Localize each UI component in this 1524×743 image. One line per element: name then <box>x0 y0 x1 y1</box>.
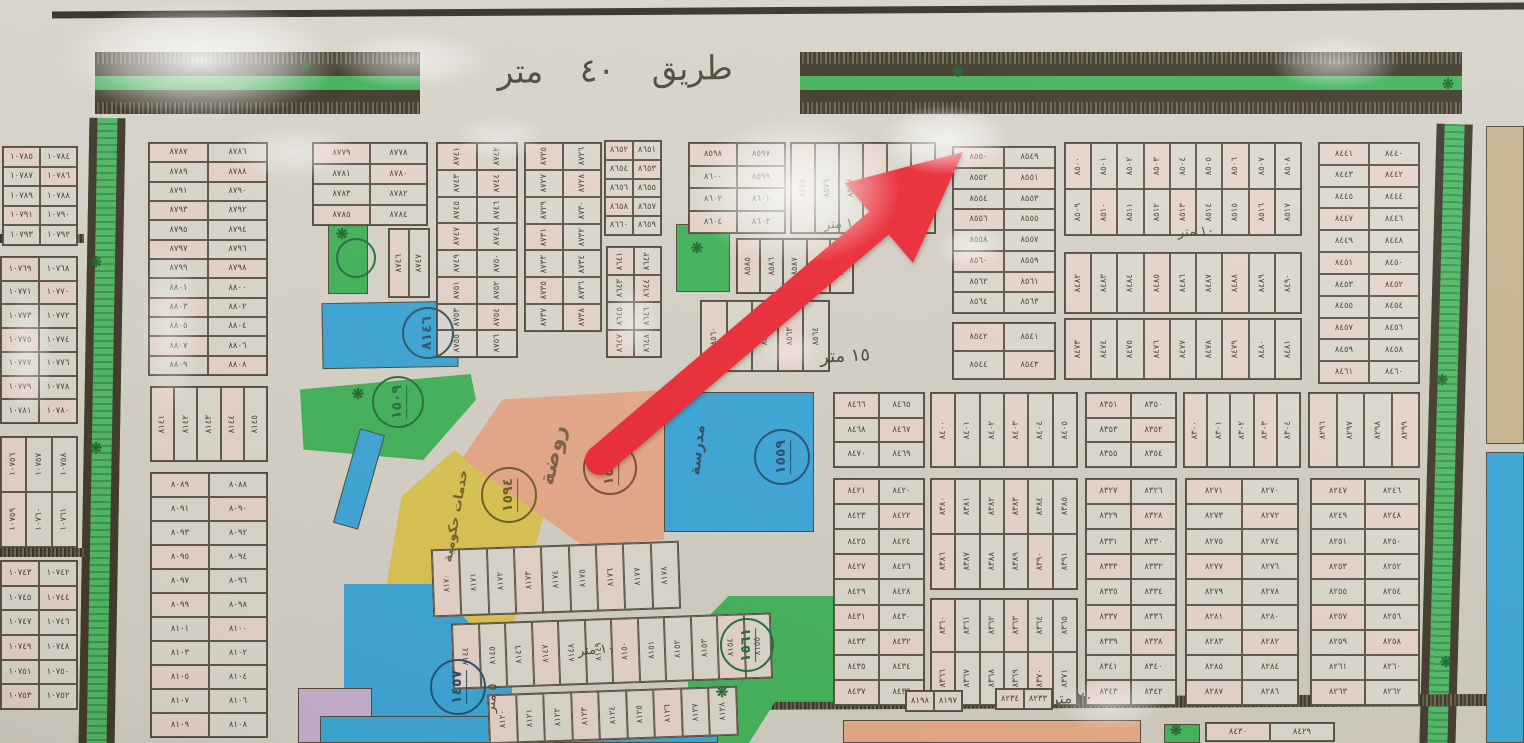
parcel-block: ٨٤٤١٨٤٤٠٨٤٤٣٨٤٤٢٨٤٤٥٨٤٤٤٨٤٤٧٨٤٤٦٨٤٤٩٨٤٤٨… <box>1318 142 1420 384</box>
tree-sparkle-icon: ❋ <box>90 253 103 271</box>
parcel-cell: ٨٨٠١ <box>149 278 208 297</box>
parcel-cell: ٨٧٤٣ <box>437 170 477 197</box>
parcel-cell: ٨٥٤٢ <box>953 323 1004 351</box>
parcel-cell: ٨٢٧٨ <box>1242 579 1298 604</box>
parcel-cell: ٨٥٨٩ <box>830 239 853 293</box>
parcel-cell: ٨٣٦٥ <box>1053 599 1077 652</box>
parcel-cell: ٨٥٥٧ <box>1004 230 1055 251</box>
parcel-block: ٨١٩٨٨١٩٧ <box>905 690 963 712</box>
parcel-cell: ٨٢٨٣ <box>1186 630 1242 655</box>
parcel-cell: ٨٤٨٥ <box>1144 253 1170 313</box>
parcel-cell: ٨٤٢١ <box>834 479 879 504</box>
parcel-cell: ٨٥١٥ <box>1222 189 1248 235</box>
parcel-cell: ٨٢٣٤ <box>996 689 1024 709</box>
parcel-cell: ٨٢٩٨ <box>1364 393 1392 467</box>
parcel-cell: ٨٢٥٧ <box>1311 605 1365 630</box>
parcel-cell: ٨٣٣٧ <box>1086 605 1131 630</box>
parcel-cell: ٨١٠٦ <box>209 689 267 713</box>
parcel-cell: ٨٥٧٩ <box>887 143 911 233</box>
tree-sparkle-icon: ❋ <box>352 385 365 403</box>
parcel-cell: ٨٧٤٤ <box>477 170 517 197</box>
parcel-cell: ٨٤٥٣ <box>1319 274 1369 296</box>
parcel-cell: ٨٣٣٠ <box>1131 529 1176 554</box>
parcel-cell: ٨٧٩٠ <box>208 182 267 201</box>
parcel-block: ٨٣٨٠٨٣٨١٨٣٨٢٨٣٨٣٨٣٨٤٨٣٨٥٨٣٨٦٨٣٨٧٨٣٨٨٨٣٨٩… <box>930 478 1078 590</box>
parcel-block: ٨٤٠٠٨٤٠١٨٤٠٢٨٤٠٣٨٤٠٤٨٤٠٥ <box>930 392 1078 468</box>
parcel-cell: ٨٧٩٩ <box>149 259 208 278</box>
parcel-cell: ٨٣٠١ <box>1207 393 1230 467</box>
zone-garden-small-top <box>676 224 730 292</box>
parcel-cell: ١٠٧٧٩ <box>1 376 39 400</box>
parcel-cell: ٨٢٧٧ <box>1186 554 1242 579</box>
parcel-cell: ٨٥٥٨ <box>953 230 1004 251</box>
tree-sparkle-icon: ❋ <box>336 225 349 243</box>
parcel-cell: ٨٤٣٠ <box>879 605 924 630</box>
parcel-cell: ١٠٧٨٥ <box>3 147 40 167</box>
parcel-cell: ٨٢٧٩ <box>1186 579 1242 604</box>
parcel-block: ٨٥٥٠٨٥٤٩٨٥٥٢٨٥٥١٨٥٥٤٨٥٥٣٨٥٥٦٨٥٥٥٨٥٥٨٨٥٥٧… <box>952 146 1056 314</box>
parcel-block: ٨٣٠٠٨٣٠١٨٣٠٢٨٣٠٣٨٣٠٤ <box>1183 392 1301 468</box>
parcel-cell: ٨٧٢٨ <box>563 170 601 197</box>
parcel-cell: ٨٢٧٦ <box>1242 554 1298 579</box>
parcel-cell: ٨٥٠٥ <box>1196 143 1222 189</box>
parcel-cell: ٨١٧٢ <box>487 547 517 614</box>
parcel-cell: ٨٢٥٠ <box>1365 529 1419 554</box>
parcel-cell: ٨١٠٠ <box>209 617 267 641</box>
parcel-cell: ١٠٧٤٤ <box>39 586 77 611</box>
parcel-cell: ١٠٧٨٦ <box>40 167 77 187</box>
parcel-cell: ٨٥٤٣ <box>1004 351 1055 379</box>
parcel-cell: ٨٥٦٢ <box>953 272 1004 293</box>
parcel-cell: ٨٣٥١ <box>1086 393 1131 418</box>
parcel-cell: ٨٠٩٦ <box>209 569 267 593</box>
parcel-cell: ٨٣٥٣ <box>1086 418 1131 443</box>
street-label: ١٥ متر <box>819 344 870 368</box>
parcel-cell: ٨٤٩٠ <box>1275 253 1301 313</box>
parcel-cell: ٨٥٥٣ <box>1004 189 1055 210</box>
parcel-block: ٨٣٥١٨٣٥٠٨٣٥٣٨٣٥٢٨٣٥٥٨٣٥٤ <box>1085 392 1177 468</box>
parcel-block: ٨٦٤١٨٦٤٢٨٦٤٣٨٦٤٤٨٦٤٥٨٦٤٦٨٦٤٧٨٦٤٨ <box>606 246 662 358</box>
parcel-cell: ٨٤٧٧ <box>1170 319 1196 379</box>
parcel-cell: ٨٦٥٦ <box>605 179 633 198</box>
parcel-cell: ٨٥٠٣ <box>1144 143 1170 189</box>
parcel-cell: ٨٧٣٣ <box>525 250 563 277</box>
parcel-cell: ٨٧٥٦ <box>477 330 517 357</box>
parcel-cell: ٨٠٩١ <box>151 497 209 521</box>
parcel-cell: ٨٧٥٢ <box>477 277 517 304</box>
parcel-cell: ٨٣٣٦ <box>1131 605 1176 630</box>
parcel-cell: ٨٧٩٦ <box>208 240 267 259</box>
parcel-cell: ١٠٧٥٠ <box>39 660 77 685</box>
parcel-block: ٨٧٢٥٨٧٢٦٨٧٢٧٨٧٢٨٨٧٢٩٨٧٣٠٨٧٣١٨٧٣٢٨٧٣٣٨٧٣٤… <box>524 142 602 332</box>
parcel-cell: ٨٤٥٥ <box>1319 296 1369 318</box>
parcel-cell: ٨٧٣٥ <box>525 277 563 304</box>
parcel-cell: ٨٧٣٤ <box>563 250 601 277</box>
parcel-cell: ٨٢٦٢ <box>1365 680 1419 705</box>
parcel-cell: ٨٦٥٧ <box>633 197 661 216</box>
parcel-cell: ٨١٠٥ <box>151 665 209 689</box>
parcel-cell: ٨٤٤٣ <box>1319 165 1369 187</box>
parcel-cell: ٨٢٩٩ <box>1392 393 1420 467</box>
parcel-cell: ٨٦٥٩ <box>633 216 661 235</box>
parcel-cell: ٨٠٩٧ <box>151 569 209 593</box>
parcel-cell: ١٠٧٤٨ <box>39 635 77 660</box>
parcel-block: ٨٢٣٤٨٢٣٣ <box>995 688 1053 710</box>
parcel-cell: ٨٠٨٩ <box>151 473 209 497</box>
parcel-cell: ٨٧٤٥ <box>437 197 477 224</box>
parcel-cell: ٨٧٣٢ <box>563 224 601 251</box>
parcel-cell: ١٠٧٨٤ <box>40 147 77 167</box>
parcel-cell: ٨٤٤٧ <box>1319 208 1369 230</box>
parcel-cell: ٨٥٠٤ <box>1170 143 1196 189</box>
parcel-block: ٨٤٦٦٨٤٦٥٨٤٦٨٨٤٦٧٨٤٧٠٨٤٦٩ <box>833 392 925 468</box>
parcel-cell: ٨٣٠٢ <box>1230 393 1253 467</box>
left-road-strip <box>79 118 126 743</box>
parcel-cell: ٨٤٤٠ <box>1369 143 1419 165</box>
parcel-cell: ٨٥٦٠ <box>701 301 727 371</box>
parcel-cell: ٨١٠٨ <box>209 713 267 737</box>
tree-sparkle-icon: ❋ <box>952 63 965 81</box>
parcel-cell: ١٠٧٨٧ <box>3 167 40 187</box>
parcel-cell: ٨١٠٧ <box>151 689 209 713</box>
parcel-cell: ٨٤٦١ <box>1319 361 1369 383</box>
parcel-cell: ٨٣٢٨ <box>1131 504 1176 529</box>
parcel-cell: ٨٧٩٤ <box>208 220 267 239</box>
parcel-cell: ٨٤٦٩ <box>879 442 924 467</box>
parcel-cell: ٨١٧٥ <box>568 545 598 612</box>
parcel-cell: ٨٨٠٤ <box>208 317 267 336</box>
parcel-cell: ٨٧٨٠ <box>370 164 427 185</box>
parcel-cell: ٨٦٤٦ <box>634 302 661 330</box>
parcel-cell: ٨١٠٣ <box>151 641 209 665</box>
parcel-block: ٨١٢٠٨١٢١٨١٢٢٨١٢٣٨١٢٤٨١٢٥٨١٢٦٨١٢٧٨١٢٨ <box>487 686 739 743</box>
parcel-cell: ٨٨٠٦ <box>208 336 267 355</box>
parcel-cell: ٨٧٨٧ <box>149 143 208 162</box>
parcel-cell: ٨٤٨٩ <box>1249 253 1275 313</box>
tree-sparkle-icon: ❋ <box>1442 75 1455 93</box>
parcel-block: ١٠٧٦٩١٠٧٦٨١٠٧٧١١٠٧٧٠١٠٧٧٣١٠٧٧٢١٠٧٧٥١٠٧٧٤… <box>0 256 78 424</box>
parcel-cell: ٨٣٦٢ <box>980 599 1004 652</box>
parcel-cell: ٨٣٤٠ <box>1131 655 1176 680</box>
parcel-cell: ٨٥٥٦ <box>953 209 1004 230</box>
parcel-cell: ١٠٧٧٢ <box>39 304 77 328</box>
road-40m-green-strip-left <box>95 52 420 114</box>
parcel-cell: ٨٧٤١ <box>437 143 477 170</box>
parcel-cell: ٨٣٢٦ <box>1131 479 1176 504</box>
parcel-cell: ٨٤٢٤ <box>879 529 924 554</box>
parcel-cell: ٨٤٦٦ <box>834 393 879 418</box>
parcel-cell: ٨٣٤٢ <box>1131 680 1176 705</box>
parcel-cell: ١٠٧٧٠ <box>39 281 77 305</box>
parcel-cell: ٨٢٥٨ <box>1365 630 1419 655</box>
parcel-cell: ٨٢٥٣ <box>1311 554 1365 579</box>
parcel-cell: ٨٣٨٩ <box>1004 534 1028 589</box>
parcel-cell: ٨٥٤١ <box>1004 323 1055 351</box>
parcel-cell: ٨٤٢٨ <box>879 579 924 604</box>
parcel-cell: ٨٤٤٤ <box>1369 187 1419 209</box>
block-number-circle: ١٥٥٩ <box>754 429 810 485</box>
parcel-cell: ٨٥١٠ <box>1091 189 1117 235</box>
parcel-block: ٨٤٣٠٨٤٢٩ <box>1205 722 1335 742</box>
road-40m-green-strip-right <box>800 52 1462 114</box>
tree-sparkle-icon: ❋ <box>90 439 103 457</box>
parcel-cell: ٨٤٨٤ <box>1117 253 1143 313</box>
parcel-cell: ٨٤٠٥ <box>1053 393 1077 467</box>
parcel-cell: ٨٦٥٨ <box>605 197 633 216</box>
parcel-cell: ٨٣٣٤ <box>1131 579 1176 604</box>
parcel-cell: ٨٦٤٥ <box>607 302 634 330</box>
parcel-cell: ٨٤٤١ <box>1319 143 1369 165</box>
parcel-cell: ٨٤٧٣ <box>1065 319 1091 379</box>
parcel-cell: ٨٢٩٦ <box>1309 393 1337 467</box>
parcel-cell: ٨٤٤٥ <box>1319 187 1369 209</box>
parcel-cell: ٨١٢١ <box>516 693 545 742</box>
parcel-cell: ٨١٢٦ <box>653 689 682 738</box>
parcel-cell: ٨٤٢٩ <box>1270 723 1334 741</box>
parcel-cell: ٨١٢٥ <box>626 690 655 739</box>
parcel-cell: ٨٣٨٥ <box>1053 479 1077 534</box>
parcel-cell: ٨٣٣٨ <box>1131 630 1176 655</box>
parcel-cell: ١٠٧٥٣ <box>1 684 39 709</box>
parcel-cell: ٨٦٠٣ <box>737 211 785 234</box>
parcel-cell: ٨٧٣١ <box>525 224 563 251</box>
parcel-cell: ٨٧٩٨ <box>208 259 267 278</box>
parcel-cell: ٨٤٥٦ <box>1369 318 1419 340</box>
zone-tan-right-edge <box>1486 126 1524 444</box>
parcel-cell: ٨٣٨٤ <box>1028 479 1052 534</box>
parcel-cell: ٨٥٨٥ <box>737 239 760 293</box>
parcel-cell: ٨٢٤٧ <box>1311 479 1365 504</box>
parcel-cell: ٨٥٩٨ <box>689 143 737 166</box>
parcel-block: ٨٧٤٦٨٧٤٧ <box>388 228 430 298</box>
parcel-cell: ٨٦٤١ <box>607 247 634 275</box>
parcel-cell: ٨٧٨٢ <box>370 184 427 205</box>
parcel-cell: ٨٦٤٣ <box>607 275 634 303</box>
parcel-cell: ١٠٧٦٩ <box>1 257 39 281</box>
parcel-cell: ٨٨٠٢ <box>208 298 267 317</box>
parcel-cell: ٨٣٣٣ <box>1086 554 1131 579</box>
block-number-circle: ١٥٥٤ <box>583 441 637 495</box>
parcel-cell: ٨٧٢٧ <box>525 170 563 197</box>
parcel-cell: ٨٣٨٧ <box>955 534 979 589</box>
parcel-cell: ٨٥٠٦ <box>1222 143 1248 189</box>
parcel-cell: ٨٥٠١ <box>1091 143 1117 189</box>
parcel-cell: ٨٨٠٥ <box>149 317 208 336</box>
tree-sparkle-icon: ❋ <box>1440 653 1453 671</box>
parcel-cell: ٨٥٥٤ <box>953 189 1004 210</box>
parcel-cell: ٨١٧٦ <box>596 544 626 611</box>
parcel-cell: ٨٤٥٧ <box>1319 318 1369 340</box>
parcel-cell: ٨١٥٢ <box>664 616 693 681</box>
parcel-cell: ٨١٤٧ <box>531 621 560 686</box>
parcel-cell: ٨٧٨٨ <box>208 162 267 181</box>
parcel-cell: ٨١٧٧ <box>623 543 653 610</box>
parcel-cell: ٨٨٠٧ <box>149 336 208 355</box>
parcel-cell: ٨٧٢٥ <box>525 143 563 170</box>
parcel-cell: ٨٢٥١ <box>1311 529 1365 554</box>
parcel-cell: ٨٥٠٩ <box>1065 189 1091 235</box>
parcel-cell: ٨٥٥٩ <box>1004 251 1055 272</box>
parcel-cell: ٨٥٤٩ <box>1004 147 1055 168</box>
parcel-cell: ٨٧٩٣ <box>149 201 208 220</box>
parcel-cell: ٨٢٧١ <box>1186 479 1242 504</box>
parcel-cell: ٨٦٥٥ <box>633 179 661 198</box>
parcel-cell: ٨٤٢٧ <box>834 554 879 579</box>
parcel-cell: ٨٦٦٠ <box>605 216 633 235</box>
zone-blue-right-edge <box>1486 452 1524 743</box>
parcel-cell: ٨٢٥٩ <box>1311 630 1365 655</box>
parcel-cell: ٨١٤٢ <box>174 387 197 461</box>
parcel-cell: ٨٢٨٧ <box>1186 680 1242 705</box>
parcel-cell: ٨١٥٣ <box>690 615 719 680</box>
parcel-cell: ٨١٢٧ <box>681 688 710 737</box>
parcel-cell: ٨٤٣٥ <box>834 655 879 680</box>
tree-sparkle-icon: ❋ <box>1170 721 1183 739</box>
block-number-circle: ١٤٥٧ <box>430 659 486 715</box>
parcel-cell: ١٠٧٦١ <box>52 492 77 547</box>
parcel-cell: ١٠٧٥١ <box>1 660 39 685</box>
parcel-cell: ٨٤٨٧ <box>1196 253 1222 313</box>
parcel-cell: ٨١٠٤ <box>209 665 267 689</box>
parcel-cell: ٨٠٩٢ <box>209 521 267 545</box>
parcel-cell: ٨٥٨٦ <box>760 239 783 293</box>
parcel-cell: ٨٢٦٣ <box>1311 680 1365 705</box>
parcel-cell: ٨٢٨١ <box>1186 605 1242 630</box>
parcel-cell: ٨٧٥١ <box>437 277 477 304</box>
parcel-cell: ٨٧٤٦ <box>477 197 517 224</box>
parcel-cell: ٨٤٦٠ <box>1369 361 1419 383</box>
parcel-cell: ٨١٥٠ <box>611 618 640 683</box>
parcel-block: ٨٥٤٢٨٥٤١٨٥٤٤٨٥٤٣ <box>952 322 1056 380</box>
parcel-block: ٨٥٦٠٨٥٦١٨٥٦٢٨٥٦٣٨٥٦٤ <box>700 300 830 372</box>
parcel-cell: ٨٢٧٤ <box>1242 529 1298 554</box>
parcel-cell: ١٠٧٧٥ <box>1 328 39 352</box>
parcel-block: ١٠٧٤٣١٠٧٤٢١٠٧٤٥١٠٧٤٤١٠٧٤٧١٠٧٤٦١٠٧٤٩١٠٧٤٨… <box>0 560 78 710</box>
parcel-block: ٨٤٨٢٨٤٨٣٨٤٨٤٨٤٨٥٨٤٨٦٨٤٨٧٨٤٨٨٨٤٨٩٨٤٩٠ <box>1064 252 1302 314</box>
parcel-cell: ٨٧٣٠ <box>563 197 601 224</box>
parcel-cell: ٨٦٤٢ <box>634 247 661 275</box>
parcel-cell: ٨٧٤٦ <box>389 229 409 297</box>
parcel-cell: ٨٤٤٢ <box>1369 165 1419 187</box>
parcel-cell: ٨٥٨٠ <box>911 143 935 233</box>
parcel-cell: ٨٤٢٦ <box>879 554 924 579</box>
parcel-cell: ٨٧٩٥ <box>149 220 208 239</box>
parcel-cell: ٨٢٨٠ <box>1242 605 1298 630</box>
parcel-cell: ٨٢٧٢ <box>1242 504 1298 529</box>
parcel-cell: ١٠٧٥٨ <box>52 437 77 492</box>
parcel-cell: ٨٥٦٣ <box>1004 292 1055 313</box>
parcel-cell: ٨١٤٥ <box>244 387 267 461</box>
parcel-cell: ٨٤٦٥ <box>879 393 924 418</box>
parcel-cell: ٨٤٦٨ <box>834 418 879 443</box>
parcel-cell: ١٠٧٨٨ <box>40 186 77 206</box>
parcel-cell: ٨٧٩٧ <box>149 240 208 259</box>
right-road-strip <box>1419 124 1472 743</box>
street-label: ١٠ متر <box>577 641 614 659</box>
parcel-cell: ١٠٧٨٩ <box>3 186 40 206</box>
parcel-cell: ٨٤٨٦ <box>1170 253 1196 313</box>
parcel-block: ٨٧٧٩٨٧٧٨٨٧٨١٨٧٨٠٨٧٨٣٨٧٨٢٨٧٨٥٨٧٨٤ <box>312 142 428 226</box>
parcel-cell: ٨٤٧٩ <box>1222 319 1248 379</box>
parcel-cell: ٨٥٦١ <box>1004 272 1055 293</box>
parcel-cell: ٨٥٠٨ <box>1275 143 1301 189</box>
parcel-cell: ٨٢٧٣ <box>1186 504 1242 529</box>
parcel-cell: ٨١٤١ <box>151 387 174 461</box>
parcel-cell: ٨٢٧٥ <box>1186 529 1242 554</box>
parcel-cell: ٨٥١٧ <box>1275 189 1301 235</box>
parcel-cell: ٨٢٥٥ <box>1311 579 1365 604</box>
parcel-cell: ٨٤٠٠ <box>931 393 955 467</box>
parcel-cell: ٨٧٣٨ <box>563 304 601 331</box>
parcel-cell: ٨٥١٢ <box>1144 189 1170 235</box>
parcel-cell: ٨٣٥٥ <box>1086 442 1131 467</box>
parcel-cell: ٨١٠٢ <box>209 641 267 665</box>
parcel-cell: ٨٥٨٧ <box>783 239 806 293</box>
parcel-cell: ٨٥٧٥ <box>791 143 815 233</box>
parcel-cell: ٨٤٤٩ <box>1319 230 1369 252</box>
parcel-cell: ٨٧٨١ <box>313 164 370 185</box>
parcel-block: ٨٢٤٧٨٢٤٦٨٢٤٩٨٢٤٨٨٢٥١٨٢٥٠٨٢٥٣٨٢٥٢٨٢٥٥٨٢٥٤… <box>1310 478 1420 706</box>
parcel-block: ٨٢٩٦٨٢٩٧٨٢٩٨٨٢٩٩ <box>1308 392 1420 468</box>
parcel-cell: ١٠٧٦٠ <box>26 492 51 547</box>
parcel-cell: ٨٧٨٩ <box>149 162 208 181</box>
parcel-cell: ١٠٧٤٢ <box>39 561 77 586</box>
parcel-cell: ٨٤٠٤ <box>1028 393 1052 467</box>
parcel-cell: ٨٣٣٩ <box>1086 630 1131 655</box>
parcel-cell: ٨٣٠٣ <box>1254 393 1277 467</box>
parcel-cell: ٨٢٥٤ <box>1365 579 1419 604</box>
street-label: ١٠ متر <box>823 215 860 232</box>
parcel-cell: ٨٥٩٩ <box>737 166 785 189</box>
parcel-cell: ٨٤٢٢ <box>879 504 924 529</box>
parcel-cell: ٨٤٨٨ <box>1222 253 1248 313</box>
parcel-cell: ٨٣٢٧ <box>1086 479 1131 504</box>
parcel-cell: ٨٥٦١ <box>727 301 753 371</box>
parcel-cell: ٨٦٠٠ <box>689 166 737 189</box>
street-label: ٢٠ متر <box>1051 688 1094 708</box>
parcel-cell: ٨٥٦٤ <box>953 292 1004 313</box>
parcel-cell: ٨٣٦١ <box>955 599 979 652</box>
parcel-cell: ١٠٧٤٩ <box>1 635 39 660</box>
parcel-cell: ٨٣٩١ <box>1053 534 1077 589</box>
parcel-block: ٨١٧٠٨١٧١٨١٧٢٨١٧٣٨١٧٤٨١٧٥٨١٧٦٨١٧٧٨١٧٨ <box>431 541 681 618</box>
parcel-block: ٨٠٨٩٨٠٨٨٨٠٩١٨٠٩٠٨٠٩٣٨٠٩٢٨٠٩٥٨٠٩٤٨٠٩٧٨٠٩٦… <box>150 472 268 738</box>
parcel-block: ٨٢٧١٨٢٧٠٨٢٧٣٨٢٧٢٨٢٧٥٨٢٧٤٨٢٧٧٨٢٧٦٨٢٧٩٨٢٧٨… <box>1185 478 1299 706</box>
parcel-cell: ٨٥٥٠ <box>953 147 1004 168</box>
parcel-cell: ٨٤٢٣ <box>834 504 879 529</box>
parcel-cell: ٨٥٦٣ <box>778 301 804 371</box>
parcel-cell: ١٠٧٥٧ <box>26 437 51 492</box>
parcel-cell: ٨٥٠٢ <box>1117 143 1143 189</box>
parcel-cell: ٨٢٥٦ <box>1365 605 1419 630</box>
parcel-cell: ٨٣٥٤ <box>1131 442 1176 467</box>
parcel-cell: ١٠٧٧١ <box>1 281 39 305</box>
parcel-cell: ٨٥٦٠ <box>953 251 1004 272</box>
parcel-cell: ٨٧٤٧ <box>437 223 477 250</box>
parcel-cell: ٨٤٥٠ <box>1369 252 1419 274</box>
parcel-cell: ٨٣٦٠ <box>931 599 955 652</box>
parcel-cell: ٨٤٥٢ <box>1369 274 1419 296</box>
parcel-cell: ٨٧٤٩ <box>437 250 477 277</box>
parcel-cell: ٨٢٧٠ <box>1242 479 1298 504</box>
parcel-cell: ٨٤٨٠ <box>1249 319 1275 379</box>
parcel-cell: ٨١٧٨ <box>650 542 680 609</box>
block-number-circle: ١٥٠٩ <box>372 376 424 428</box>
tree-sparkle-icon: ❋ <box>300 57 313 75</box>
parcel-cell: ٨٤٤٨ <box>1369 230 1419 252</box>
parcel-cell: ٨٢٤٦ <box>1365 479 1419 504</box>
parcel-cell: ٨٢٤٩ <box>1311 504 1365 529</box>
